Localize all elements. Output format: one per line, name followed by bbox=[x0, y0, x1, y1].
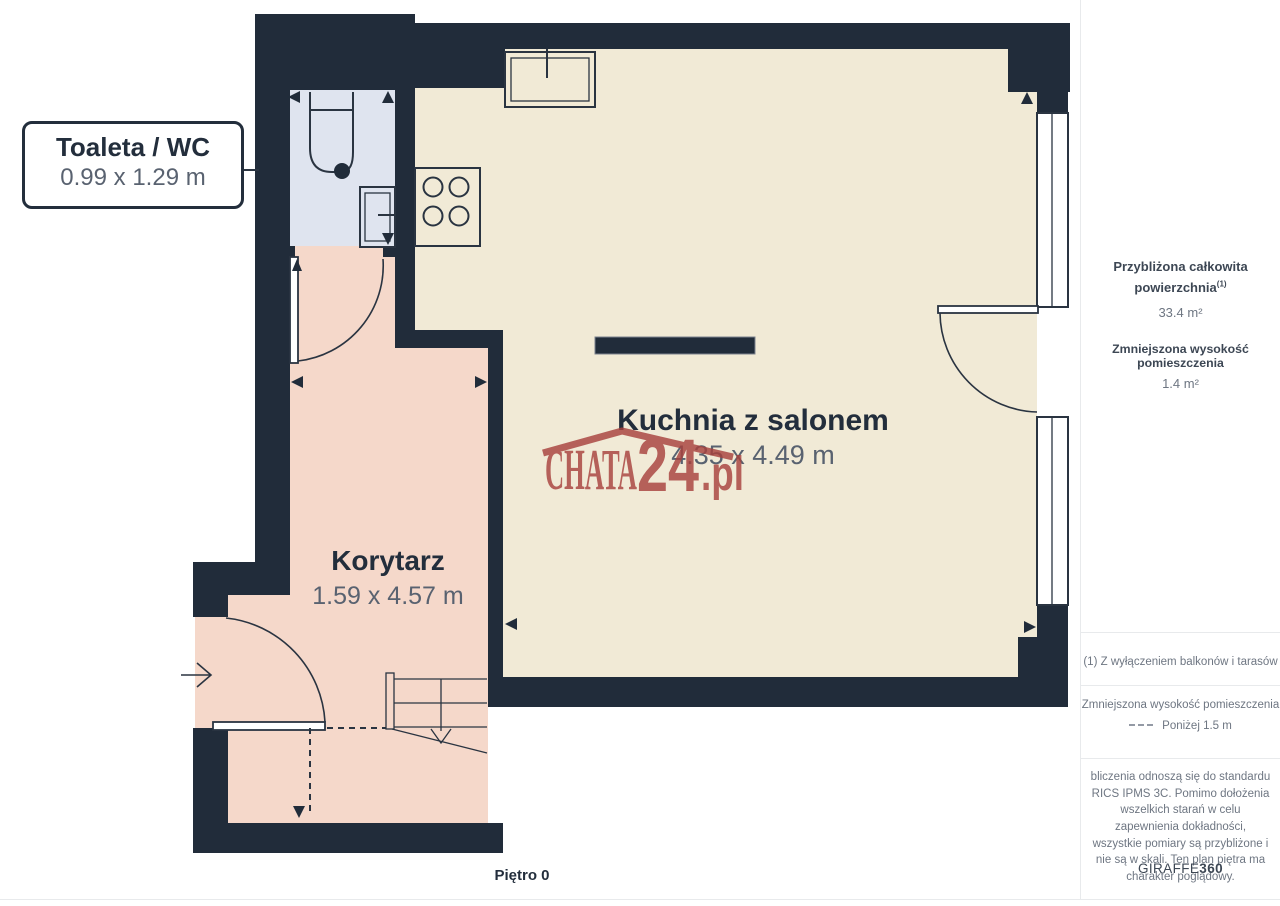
info-sidebar: Przybliżona całkowita powierzchnia(1) 33… bbox=[1080, 0, 1280, 899]
approx-area-label: Przybliżona całkowita powierzchnia(1) bbox=[1081, 257, 1280, 299]
half-wall-symbol bbox=[595, 337, 755, 354]
window-symbols bbox=[1037, 113, 1068, 605]
balcony-door-leaf bbox=[938, 306, 1038, 313]
room-name-toilet: Toaleta / WC bbox=[25, 132, 241, 162]
toilet-label-box: Toaleta / WC 0.99 x 1.29 m bbox=[22, 121, 244, 209]
room-name-corridor: Korytarz bbox=[288, 545, 488, 577]
toilet-symbol bbox=[334, 163, 350, 179]
reduced-height-label: Zmniejszona wysokość pomieszczenia bbox=[1081, 342, 1280, 370]
bottom-divider bbox=[0, 899, 1280, 900]
stove-symbol bbox=[415, 168, 480, 246]
floor-level-label: Piętro 0 bbox=[432, 867, 612, 884]
legend-label: Zmniejszona wysokość pomieszczenia bbox=[1081, 699, 1280, 711]
floor-plan-page: Toaleta / WC 0.99 x 1.29 m Kuchnia z sal… bbox=[0, 0, 1280, 906]
entry-door-leaf bbox=[213, 722, 325, 730]
area-footnote: (1) Z wyłączeniem balkonów i tarasów bbox=[1081, 656, 1280, 668]
logo-name: GIRAFFE bbox=[1138, 861, 1199, 876]
room-dims-corridor: 1.59 x 4.57 m bbox=[288, 577, 488, 615]
room-dims-toilet: 0.99 x 1.29 m bbox=[25, 162, 241, 194]
logo-suffix: 360 bbox=[1199, 861, 1223, 876]
dashed-line-sample-icon bbox=[1129, 724, 1153, 726]
footnote-marker: (1) bbox=[1217, 279, 1227, 288]
area-stats: Przybliżona całkowita powierzchnia(1) 33… bbox=[1081, 257, 1280, 413]
room-kitchen-living-floor bbox=[503, 49, 1037, 677]
room-corridor-floor bbox=[195, 595, 488, 823]
reduced-height-legend: Zmniejszona wysokość pomieszczenia Poniż… bbox=[1081, 699, 1280, 732]
kitchen-living-label: Kuchnia z salonem 4.35 x 4.49 m bbox=[553, 404, 953, 472]
toilet-door-leaf bbox=[290, 257, 298, 363]
approx-area-value: 33.4 m² bbox=[1081, 305, 1280, 320]
room-name-kitchen-living: Kuchnia z salonem bbox=[553, 404, 953, 438]
divider bbox=[1081, 758, 1280, 759]
reduced-height-value: 1.4 m² bbox=[1081, 376, 1280, 391]
kitchen-sink-symbol bbox=[505, 52, 595, 107]
divider bbox=[1081, 632, 1280, 633]
corridor-label: Korytarz 1.59 x 4.57 m bbox=[288, 545, 488, 615]
divider bbox=[1081, 685, 1280, 686]
legend-item: Poniżej 1.5 m bbox=[1162, 720, 1232, 732]
room-dims-kitchen-living: 4.35 x 4.49 m bbox=[553, 438, 953, 472]
giraffe360-logo: GIRAFFE360 bbox=[1081, 861, 1280, 876]
